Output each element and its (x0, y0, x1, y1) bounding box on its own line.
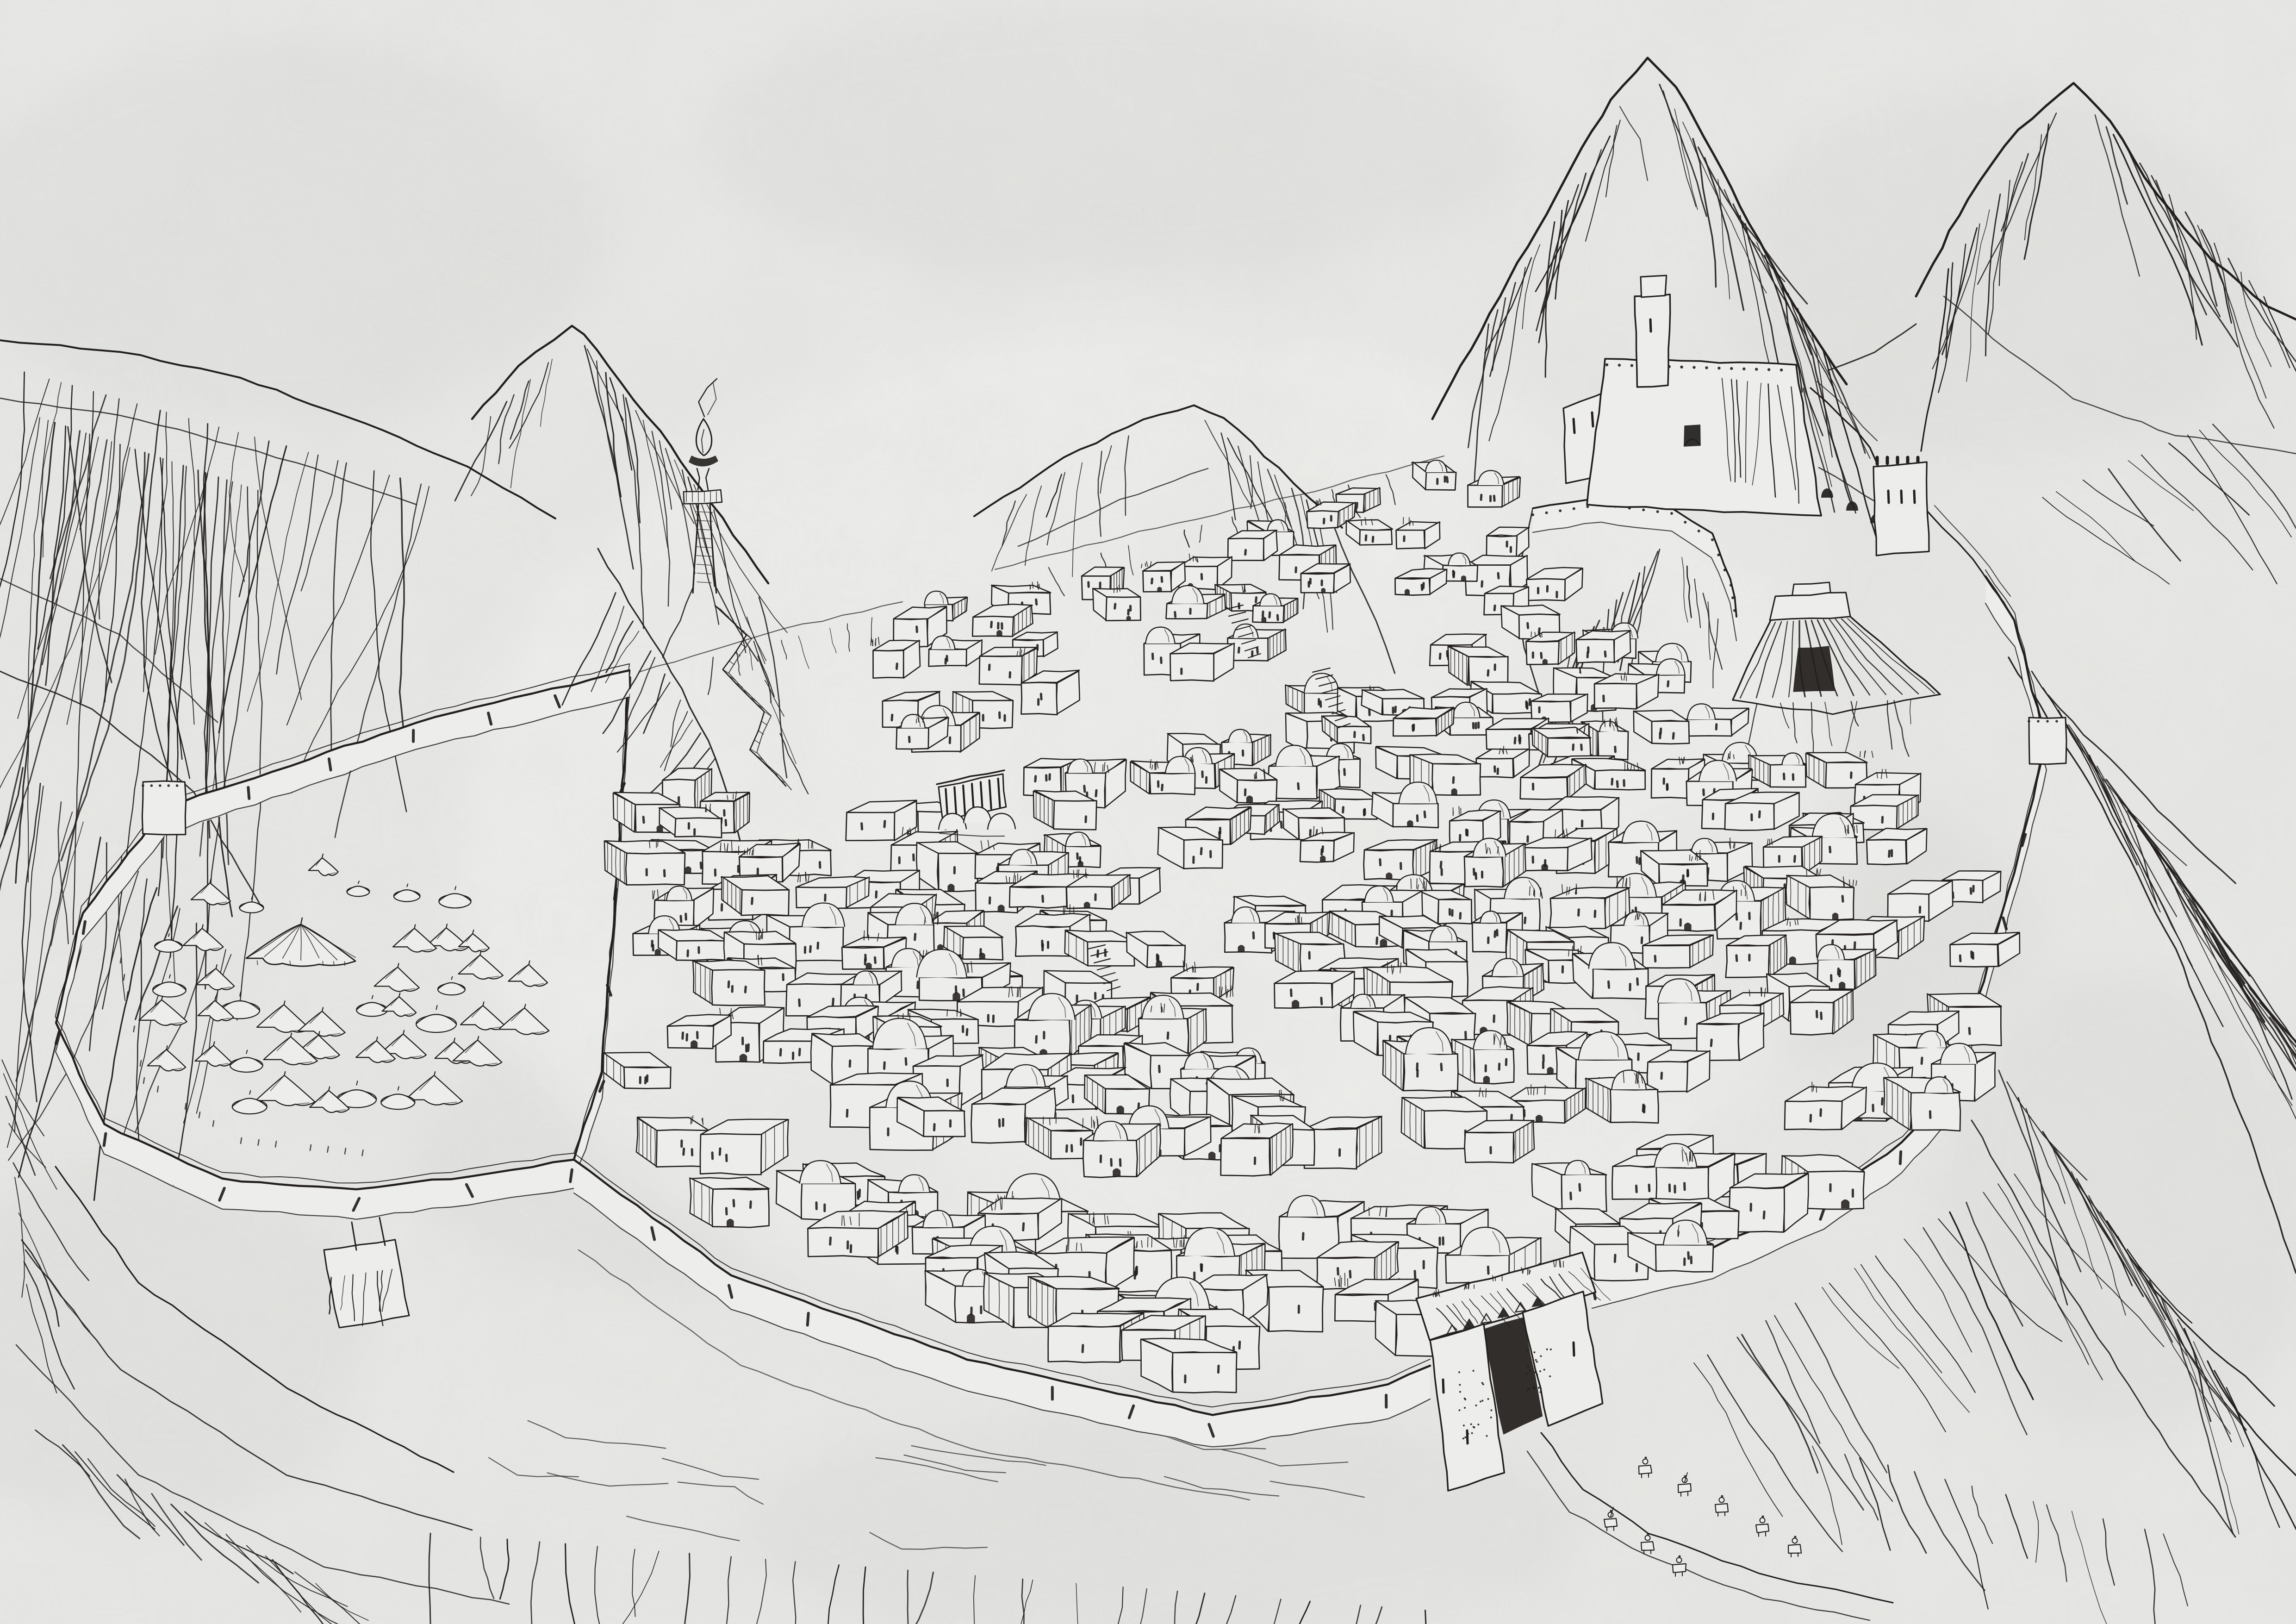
paper-grain-fine (0, 0, 2296, 1624)
house (1576, 631, 1631, 663)
house (604, 839, 685, 885)
house (636, 1116, 709, 1167)
illustration-stage (0, 0, 2296, 1624)
house (1726, 935, 1787, 977)
city-illustration (0, 0, 2296, 1624)
house (1228, 530, 1277, 561)
house (690, 1177, 770, 1227)
